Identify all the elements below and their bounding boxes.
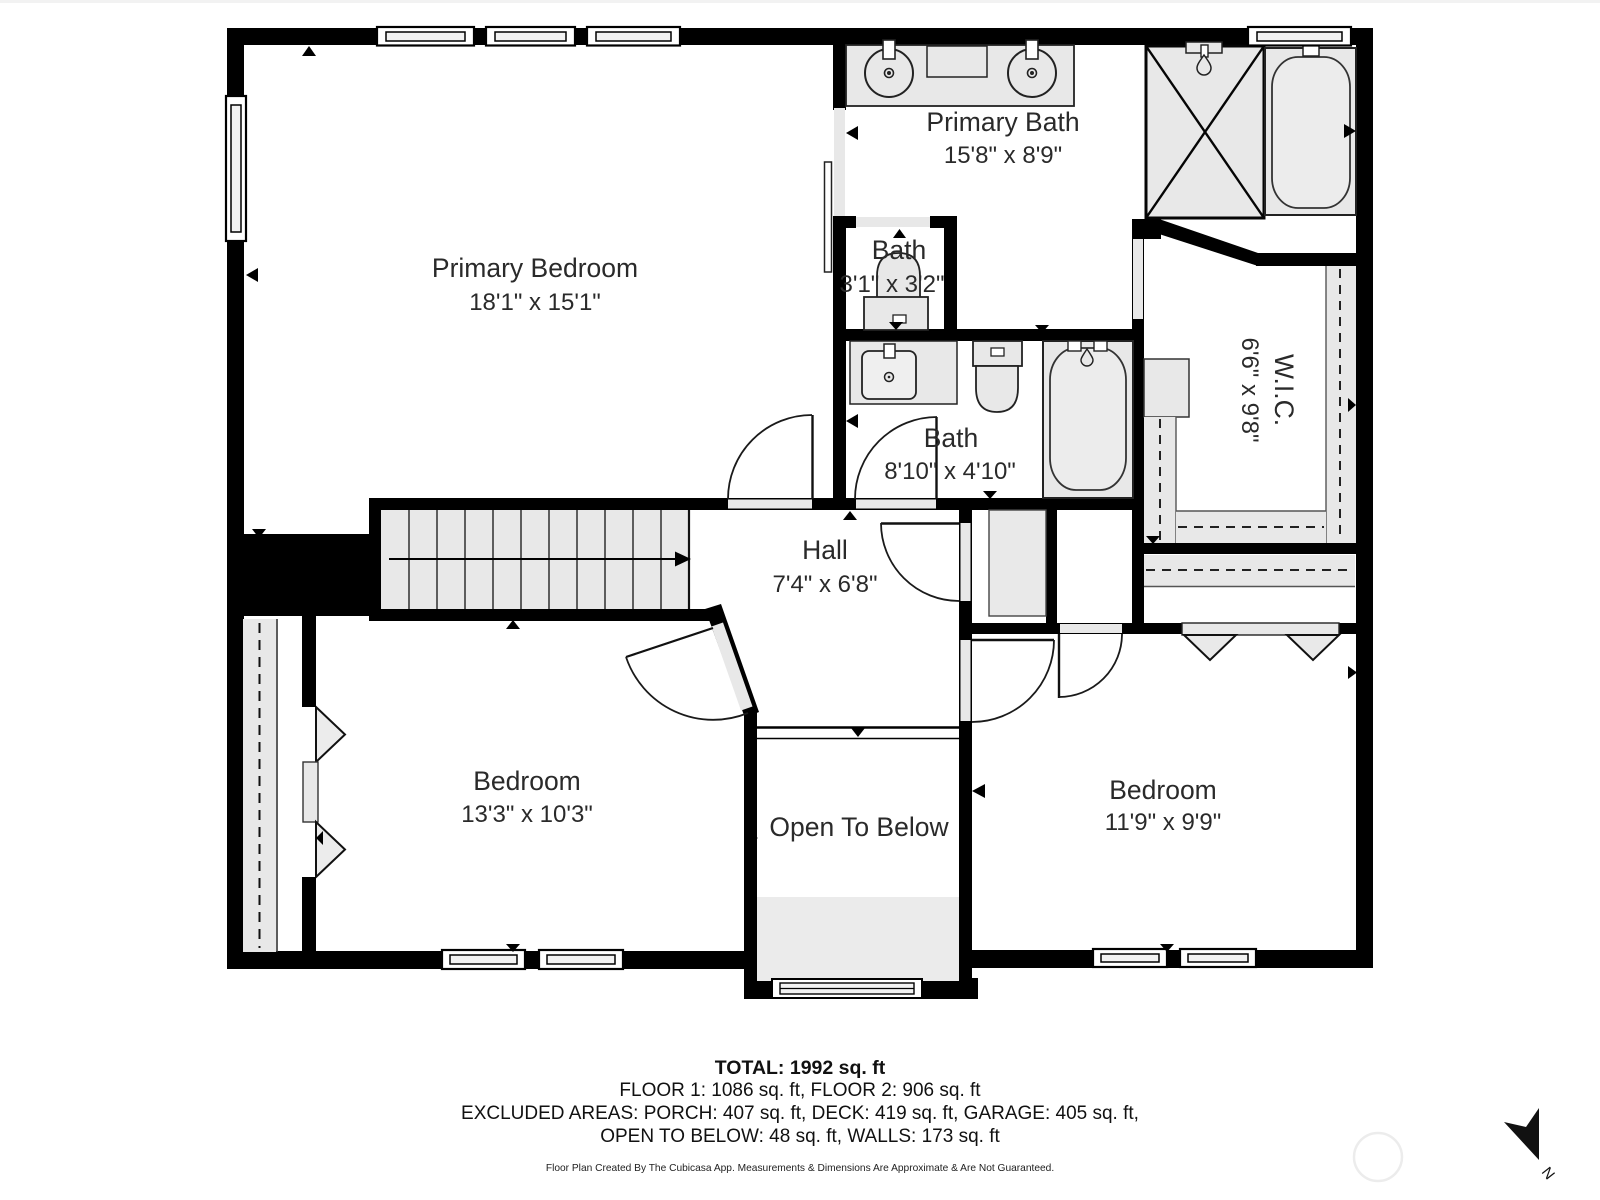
svg-text:Bath: Bath [872, 235, 927, 265]
svg-text:7'4" x 6'8": 7'4" x 6'8" [773, 571, 878, 598]
svg-text:Primary Bath: Primary Bath [926, 107, 1079, 137]
svg-text:Bedroom: Bedroom [473, 766, 581, 796]
svg-text:18'1" x 15'1": 18'1" x 15'1" [469, 289, 601, 316]
svg-text:Bedroom: Bedroom [1109, 775, 1217, 805]
svg-text:FLOOR 1: 1086 sq. ft, FLOOR 2:: FLOOR 1: 1086 sq. ft, FLOOR 2: 906 sq. f… [619, 1080, 981, 1101]
svg-text:13'3" x 10'3": 13'3" x 10'3" [461, 801, 593, 828]
svg-text:15'8" x 8'9": 15'8" x 8'9" [944, 142, 1062, 169]
svg-text:Hall: Hall [802, 535, 848, 565]
svg-text:3'1" x 3'2": 3'1" x 3'2" [840, 271, 945, 298]
svg-text:6'6" x 9'8": 6'6" x 9'8" [1236, 338, 1263, 443]
svg-text:Bath: Bath [924, 423, 979, 453]
svg-text:TOTAL: 1992 sq. ft: TOTAL: 1992 sq. ft [715, 1057, 886, 1079]
svg-text:OPEN TO BELOW: 48 sq. ft, WALL: OPEN TO BELOW: 48 sq. ft, WALLS: 173 sq.… [600, 1126, 1000, 1147]
svg-text:11'9" x 9'9": 11'9" x 9'9" [1105, 809, 1222, 836]
svg-text:Floor Plan Created By The Cubi: Floor Plan Created By The Cubicasa App. … [546, 1163, 1054, 1174]
svg-text:EXCLUDED AREAS: PORCH: 407 sq.: EXCLUDED AREAS: PORCH: 407 sq. ft, DECK:… [461, 1103, 1139, 1124]
svg-text:Primary Bedroom: Primary Bedroom [432, 253, 638, 283]
svg-text:Open To Below: Open To Below [769, 812, 949, 842]
svg-text:W.I.C.: W.I.C. [1269, 354, 1299, 426]
svg-text:8'10" x 4'10": 8'10" x 4'10" [884, 458, 1016, 485]
